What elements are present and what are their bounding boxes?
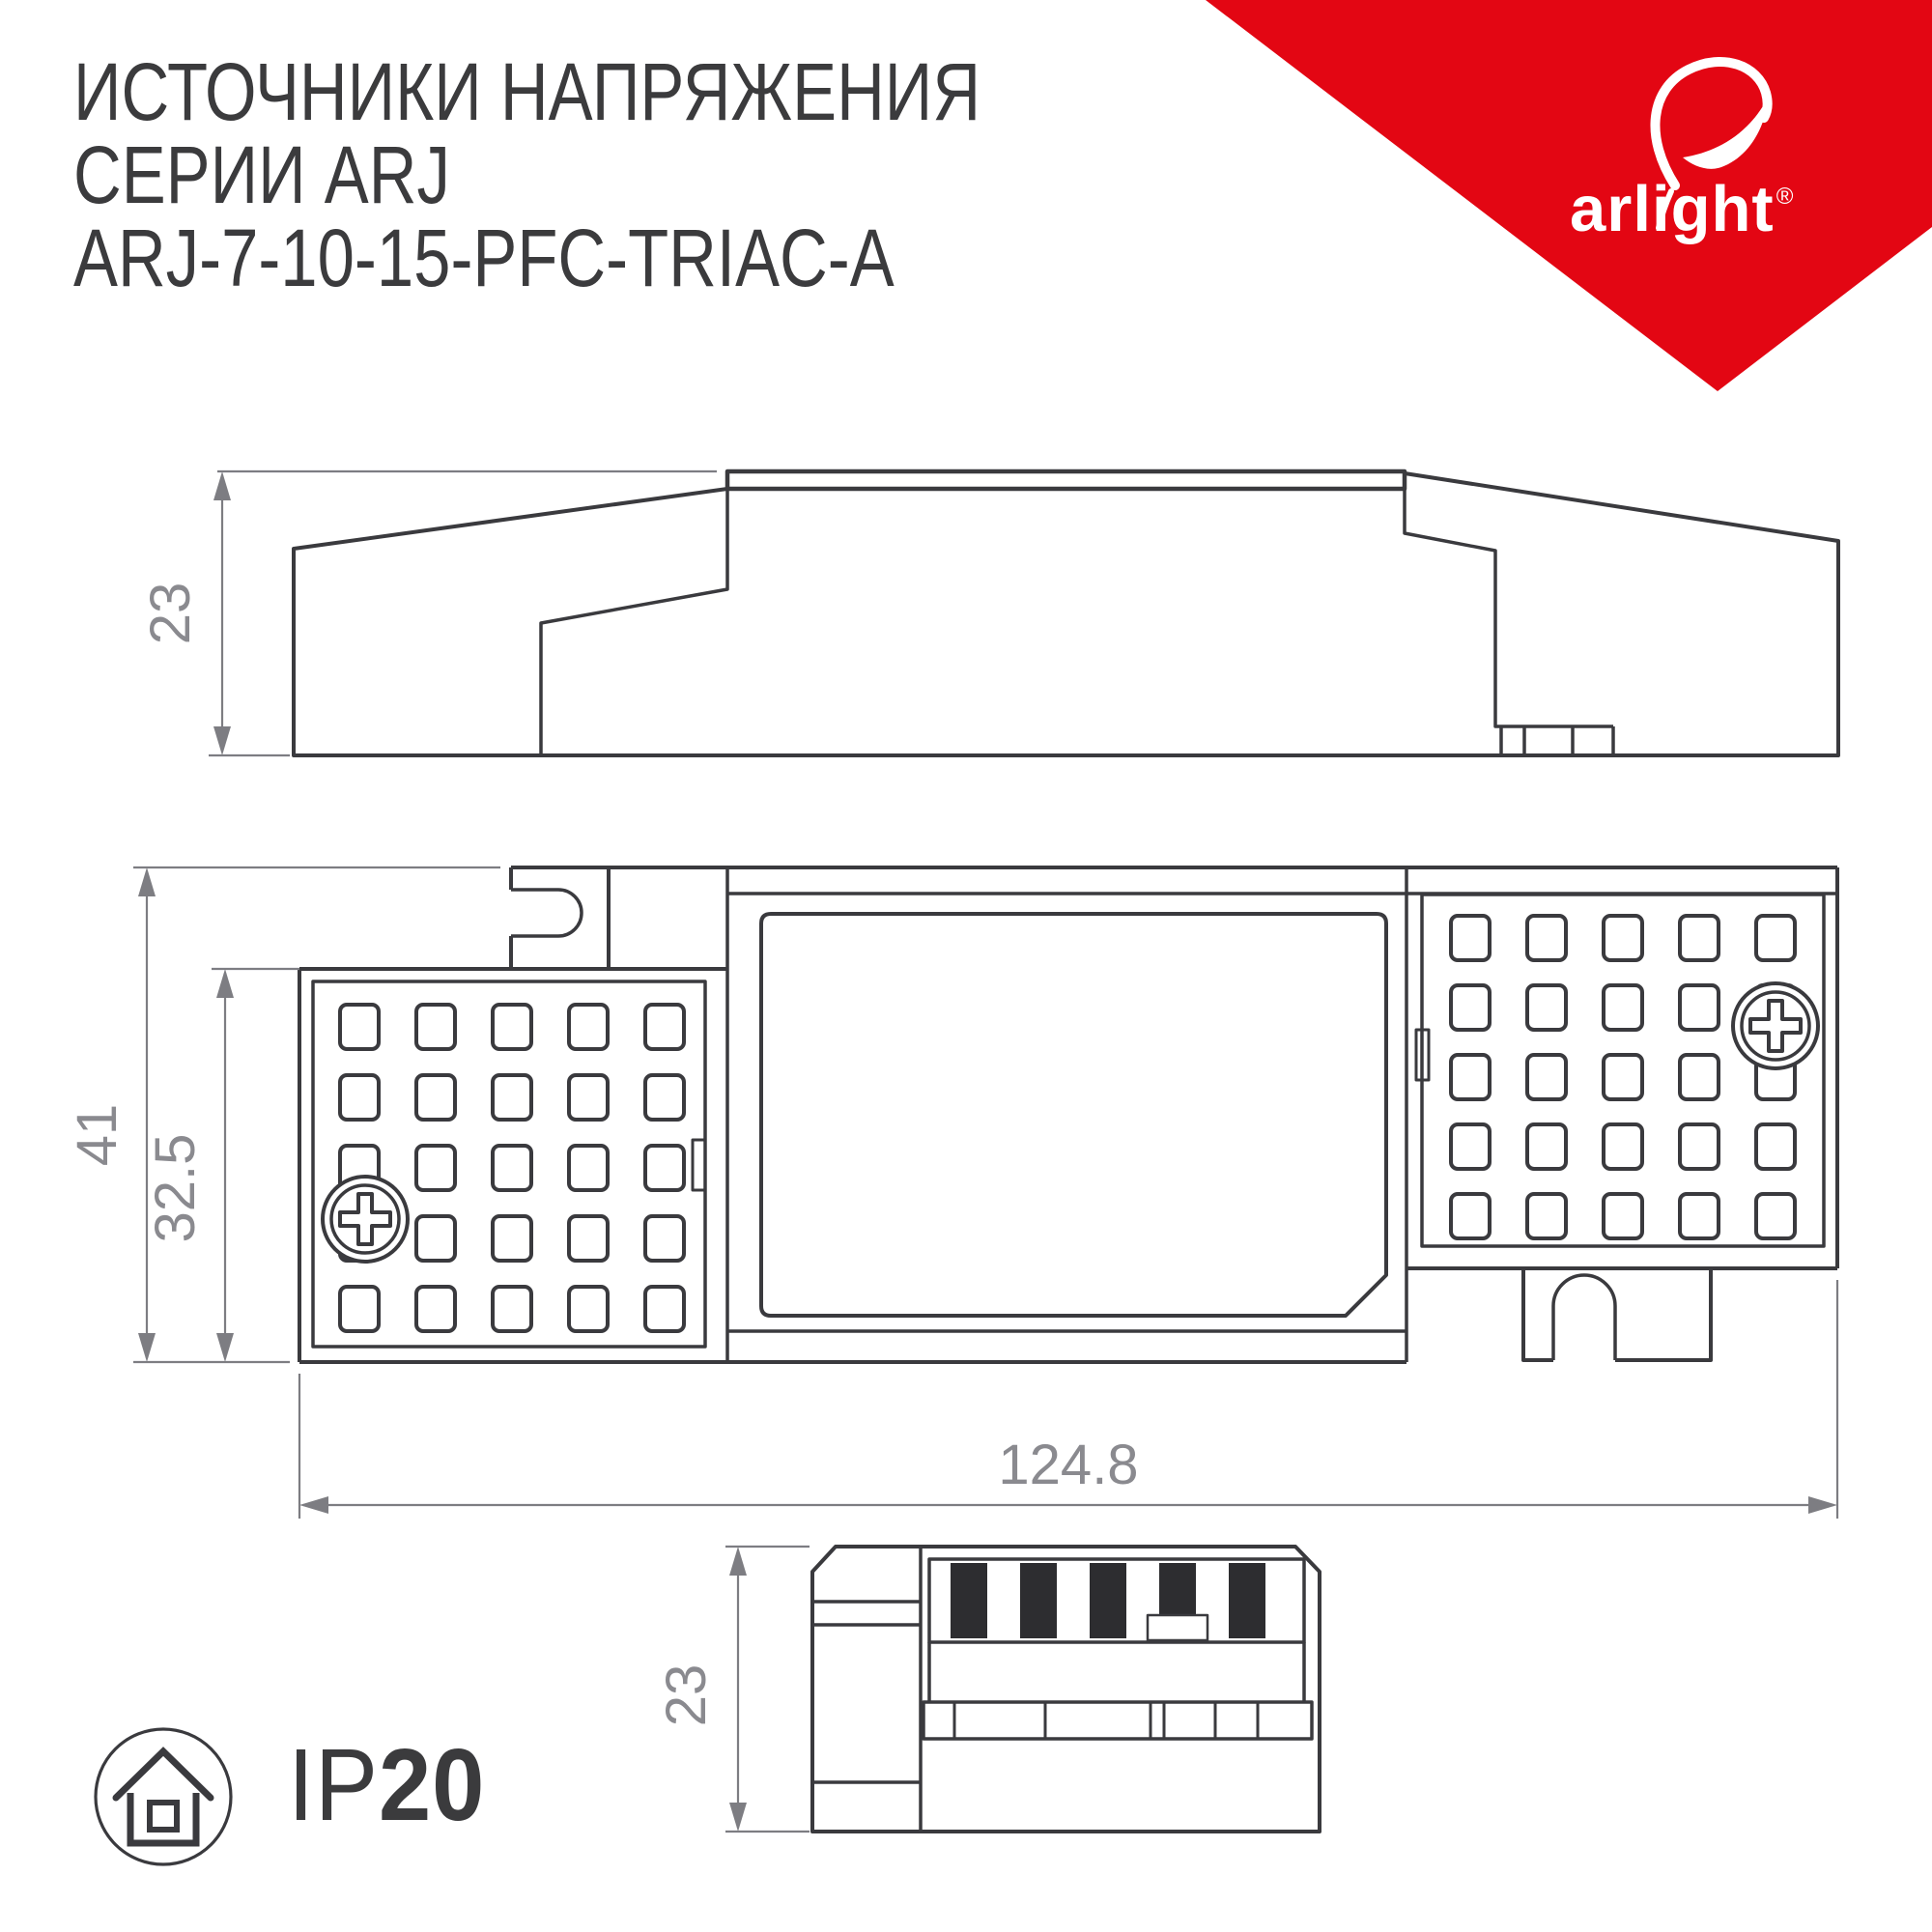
- arrow-down-icon: [138, 1333, 156, 1362]
- plan-inner-height-dim-label: 32.5: [144, 1134, 207, 1243]
- plan-central-compartment: [761, 914, 1386, 1316]
- side-height-dim-label: 23: [139, 582, 202, 645]
- ip-rating-row: IP20: [92, 1727, 502, 1844]
- arrow-left-icon: [299, 1496, 328, 1514]
- side-view: [294, 471, 1838, 755]
- side-view-outline: [294, 473, 1838, 755]
- side-view-dimension-23: [209, 471, 717, 755]
- plan-bottom-tab: [1523, 1268, 1711, 1360]
- arrow-down-icon: [216, 1333, 234, 1362]
- plan-left-latch: [693, 1140, 705, 1190]
- top-view: [299, 867, 1837, 1362]
- arrow-down-icon: [729, 1803, 747, 1832]
- end-view: [812, 1547, 1320, 1832]
- arrow-down-icon: [213, 726, 231, 755]
- end-view-terminal-dividers: [954, 1702, 1258, 1739]
- plan-outer-height-dim-label: 41: [66, 1104, 128, 1167]
- plan-width-dim-label: 124.8: [998, 1434, 1138, 1496]
- plan-left-vent-grid: [340, 1005, 684, 1331]
- end-view-dimension-23: [725, 1547, 810, 1832]
- ip-rating-label: IP20: [288, 1727, 485, 1844]
- end-view-wall-lines: [812, 1602, 921, 1782]
- end-view-connector-notch: [1148, 1615, 1207, 1640]
- screw-icon: [1733, 983, 1818, 1068]
- arrow-up-icon: [138, 867, 156, 896]
- side-view-inner-step-right: [1405, 489, 1613, 726]
- plan-right-vent-grid: [1451, 916, 1795, 1238]
- dimension-drawing: 23: [0, 0, 1932, 1932]
- ip-prefix: IP: [288, 1728, 379, 1842]
- screw-icon: [323, 1177, 408, 1262]
- end-view-connector-stripes: [951, 1563, 1265, 1638]
- plan-bottom-screw-slot: [1553, 1275, 1615, 1360]
- arrow-up-icon: [213, 471, 231, 500]
- plan-left-section: [299, 969, 1406, 1362]
- side-view-terminal-notches: [1501, 726, 1613, 755]
- drawing-sheet: ИСТОЧНИКИ НАПРЯЖЕНИЯ СЕРИИ ARJ ARJ-7-10-…: [0, 0, 1932, 1932]
- end-view-terminal-sides: [929, 1642, 1304, 1702]
- ip-value: 20: [379, 1728, 485, 1842]
- plan-central-section: [727, 867, 1837, 1362]
- arrow-up-icon: [216, 969, 234, 998]
- side-view-lid: [727, 471, 1405, 489]
- side-view-inner-step-left: [541, 489, 727, 755]
- arrow-right-icon: [1808, 1496, 1837, 1514]
- plan-top-tab: [511, 867, 609, 969]
- end-height-dim-label: 23: [655, 1664, 718, 1727]
- end-view-terminal-row: [923, 1702, 1312, 1739]
- arrow-up-icon: [729, 1547, 747, 1576]
- plan-tab-screw-slot: [511, 890, 582, 936]
